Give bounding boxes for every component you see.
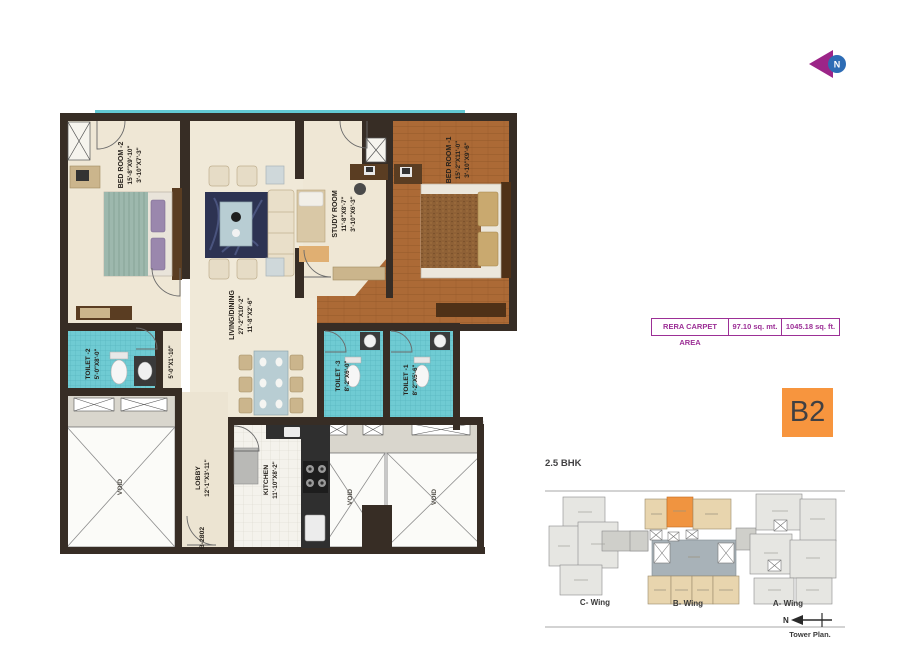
svg-text:15'-8"X9'-10": 15'-8"X9'-10": [127, 146, 134, 185]
svg-text:3'-10"X7'-3": 3'-10"X7'-3": [136, 147, 143, 182]
svg-text:TOILET -1: TOILET -1: [403, 364, 410, 395]
north-compass-icon: N: [800, 44, 856, 84]
basin-icon: [364, 335, 376, 348]
shaft-block: [362, 505, 392, 553]
svg-text:11'-10"X8'-2": 11'-10"X8'-2": [272, 461, 279, 498]
svg-text:11'-8"X8'-7": 11'-8"X8'-7": [341, 196, 348, 231]
armchair-icon: [209, 259, 229, 279]
deck-edge-strip: [95, 110, 465, 113]
svg-text:VOID: VOID: [347, 489, 354, 505]
tower-plan-caption: Tower Plan.: [789, 630, 831, 639]
svg-text:LIVING/DINING: LIVING/DINING: [229, 290, 236, 340]
wing-a-plan: [750, 494, 836, 604]
coffee-table-icon: [220, 202, 252, 246]
basin-icon: [434, 335, 446, 348]
side-table-icon: [266, 166, 284, 184]
pillow-icon: [478, 232, 498, 266]
svg-text:BED ROOM -2: BED ROOM -2: [118, 142, 125, 189]
wing-b-plan: [630, 497, 756, 604]
svg-text:VOID: VOID: [117, 479, 124, 495]
study-label: STUDY ROOM 11'-8"X8'-7" 3'-10"X6'-3": [332, 190, 357, 237]
svg-text:8'-2"X6'-0": 8'-2"X6'-0": [344, 361, 351, 392]
bench-icon: [436, 303, 506, 317]
bench-icon: [333, 267, 385, 280]
floor-plan: BED ROOM -2 15'-8"X9'-10" 3'-10"X7'-3" S…: [55, 106, 525, 568]
svg-text:KITCHEN: KITCHEN: [263, 465, 270, 495]
svg-text:11'-8"X2'-6": 11'-8"X2'-6": [247, 297, 254, 332]
unit-badge: B2: [782, 388, 833, 437]
unit-number-label: B-2802: [199, 527, 206, 550]
svg-text:BED ROOM -1: BED ROOM -1: [446, 137, 453, 184]
svg-text:3'-10"X9'-6": 3'-10"X9'-6": [464, 142, 471, 177]
svg-text:3'-10"X6'-3": 3'-10"X6'-3": [350, 196, 357, 231]
svg-text:VOID: VOID: [431, 489, 438, 505]
armchair-icon: [237, 259, 257, 279]
sink-icon: [305, 515, 325, 541]
unit-type-label: 2.5 BHK: [545, 458, 581, 469]
pillow-icon: [151, 238, 165, 270]
dining-set: [239, 351, 303, 415]
svg-text:TOILET -2: TOILET -2: [85, 348, 92, 379]
svg-text:27'-2"X10'-2": 27'-2"X10'-2": [238, 296, 245, 335]
passage-dim-label: 5'-0"X1'-10": [169, 345, 175, 378]
svg-text:5'-0"X1'-10": 5'-0"X1'-10": [169, 345, 175, 378]
rug-icon: [299, 246, 329, 262]
basin-icon: [138, 362, 152, 380]
svg-text:12'-1"X3'-11": 12'-1"X3'-11": [204, 459, 211, 496]
tower-north-letter: N: [783, 616, 789, 625]
fridge-icon: [234, 448, 258, 484]
rera-carpet-area-table: RERA CARPET AREA 97.10 sq. mt. 1045.18 s…: [651, 318, 840, 336]
svg-text:8'-2"X5'-6": 8'-2"X5'-6": [412, 365, 419, 396]
bedroom2-label: BED ROOM -2 15'-8"X9'-10" 3'-10"X7'-3": [118, 142, 143, 189]
svg-text:TOILET -3: TOILET -3: [335, 360, 342, 391]
svg-text:5'-0"X8'-0": 5'-0"X8'-0": [94, 349, 101, 380]
svg-text:B-2802: B-2802: [199, 527, 206, 550]
svg-text:LOBBY: LOBBY: [195, 466, 202, 490]
rera-area-sqft: 1045.18 sq. ft.: [781, 319, 839, 335]
wing-b-label: B- Wing: [673, 599, 703, 608]
svg-text:15'-2"X11'-0": 15'-2"X11'-0": [455, 141, 462, 180]
dining-table-icon: [254, 351, 288, 415]
pillow-icon: [151, 200, 165, 232]
bedroom1-label: BED ROOM -1 15'-2"X11'-0" 3'-10"X9'-6": [446, 137, 471, 184]
wing-a-label: A- Wing: [773, 599, 803, 608]
armchair-icon: [209, 166, 229, 186]
floorplan-page: N RERA CARPET AREA 97.10 sq. mt. 1045.18…: [0, 0, 901, 668]
svg-text:STUDY ROOM: STUDY ROOM: [332, 190, 339, 237]
armchair-icon: [237, 166, 257, 186]
rera-area-sqmt: 97.10 sq. mt.: [728, 319, 781, 335]
tower-north-arrow: N: [783, 613, 832, 627]
compass-letter: N: [834, 60, 841, 70]
highlighted-unit-b2: [667, 497, 693, 527]
living-furniture: [205, 166, 294, 279]
tower-plan: C- Wing B- Wing A- Wing N Tower Plan.: [545, 470, 850, 650]
rera-label: RERA CARPET AREA: [652, 319, 728, 335]
side-table-icon: [266, 258, 284, 276]
chair-icon: [354, 183, 366, 195]
pillow-icon: [478, 192, 498, 226]
wc-icon: [111, 360, 127, 384]
wing-c-label: C- Wing: [580, 598, 610, 607]
unit-badge-label: B2: [790, 396, 825, 429]
